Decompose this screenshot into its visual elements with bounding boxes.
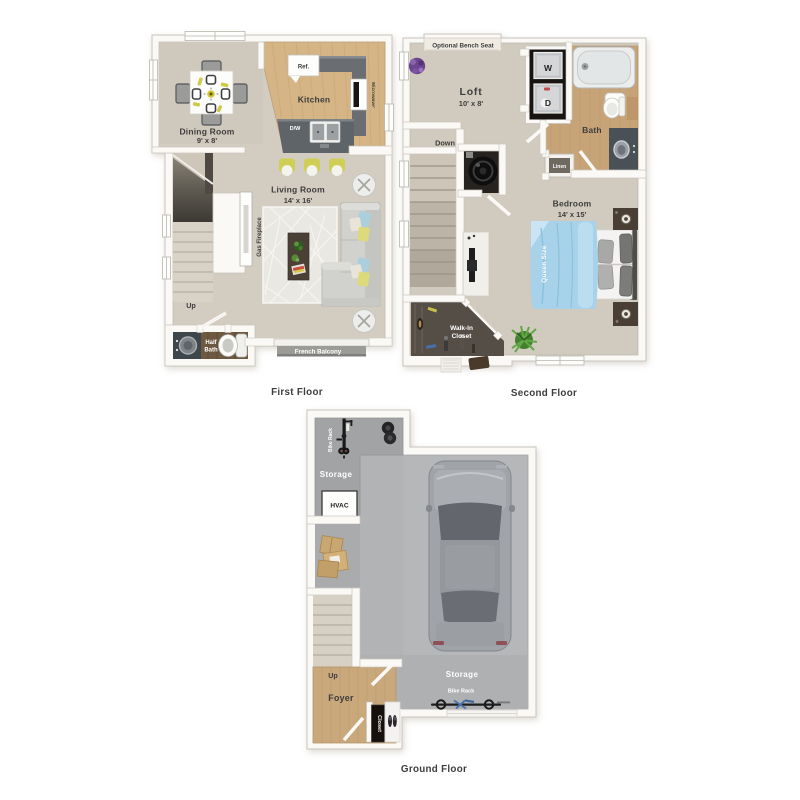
svg-text:D/W: D/W	[290, 126, 302, 132]
svg-text:Bath: Bath	[582, 125, 602, 135]
svg-text:Up: Up	[186, 301, 196, 310]
svg-text:D: D	[545, 98, 551, 108]
svg-text:Bike Rack: Bike Rack	[448, 689, 475, 695]
svg-text:Up: Up	[328, 671, 338, 680]
svg-text:Queen Size: Queen Size	[541, 245, 548, 283]
svg-text:Bedroom: Bedroom	[553, 199, 592, 209]
svg-text:14' x 15': 14' x 15'	[558, 210, 587, 219]
svg-text:First Floor: First Floor	[271, 387, 323, 398]
svg-text:Living Room: Living Room	[271, 185, 325, 195]
svg-text:Dining Room: Dining Room	[179, 127, 234, 137]
svg-text:Ref.: Ref.	[298, 65, 310, 71]
svg-text:Half: Half	[205, 340, 217, 346]
svg-text:14' x 16': 14' x 16'	[284, 196, 313, 205]
svg-text:Second Floor: Second Floor	[511, 388, 577, 399]
svg-text:Kitchen: Kitchen	[298, 95, 331, 105]
svg-text:Optional Bench Seat: Optional Bench Seat	[432, 43, 494, 50]
svg-text:Closet: Closet	[452, 333, 473, 340]
svg-text:Gas Fireplace: Gas Fireplace	[257, 217, 263, 257]
svg-text:9' x 8': 9' x 8'	[197, 136, 217, 145]
svg-text:Storage: Storage	[446, 670, 479, 679]
svg-text:HVAC: HVAC	[330, 503, 348, 510]
svg-text:Ground Floor: Ground Floor	[401, 764, 467, 775]
svg-text:W: W	[544, 63, 553, 73]
svg-text:Down: Down	[435, 139, 455, 148]
svg-text:Storage: Storage	[320, 470, 353, 479]
svg-text:10' x 8': 10' x 8'	[459, 99, 484, 108]
svg-text:Bath: Bath	[204, 348, 218, 354]
svg-text:Bike Rack: Bike Rack	[328, 428, 334, 452]
svg-text:Foyer: Foyer	[328, 693, 354, 703]
svg-text:French Balcony: French Balcony	[295, 349, 342, 356]
svg-text:Closet: Closet	[376, 715, 382, 732]
svg-text:Loft: Loft	[459, 86, 482, 98]
svg-text:Linen: Linen	[553, 164, 566, 170]
svg-text:Walk-In: Walk-In	[450, 325, 473, 332]
svg-text:Microwave': Microwave'	[370, 82, 376, 108]
